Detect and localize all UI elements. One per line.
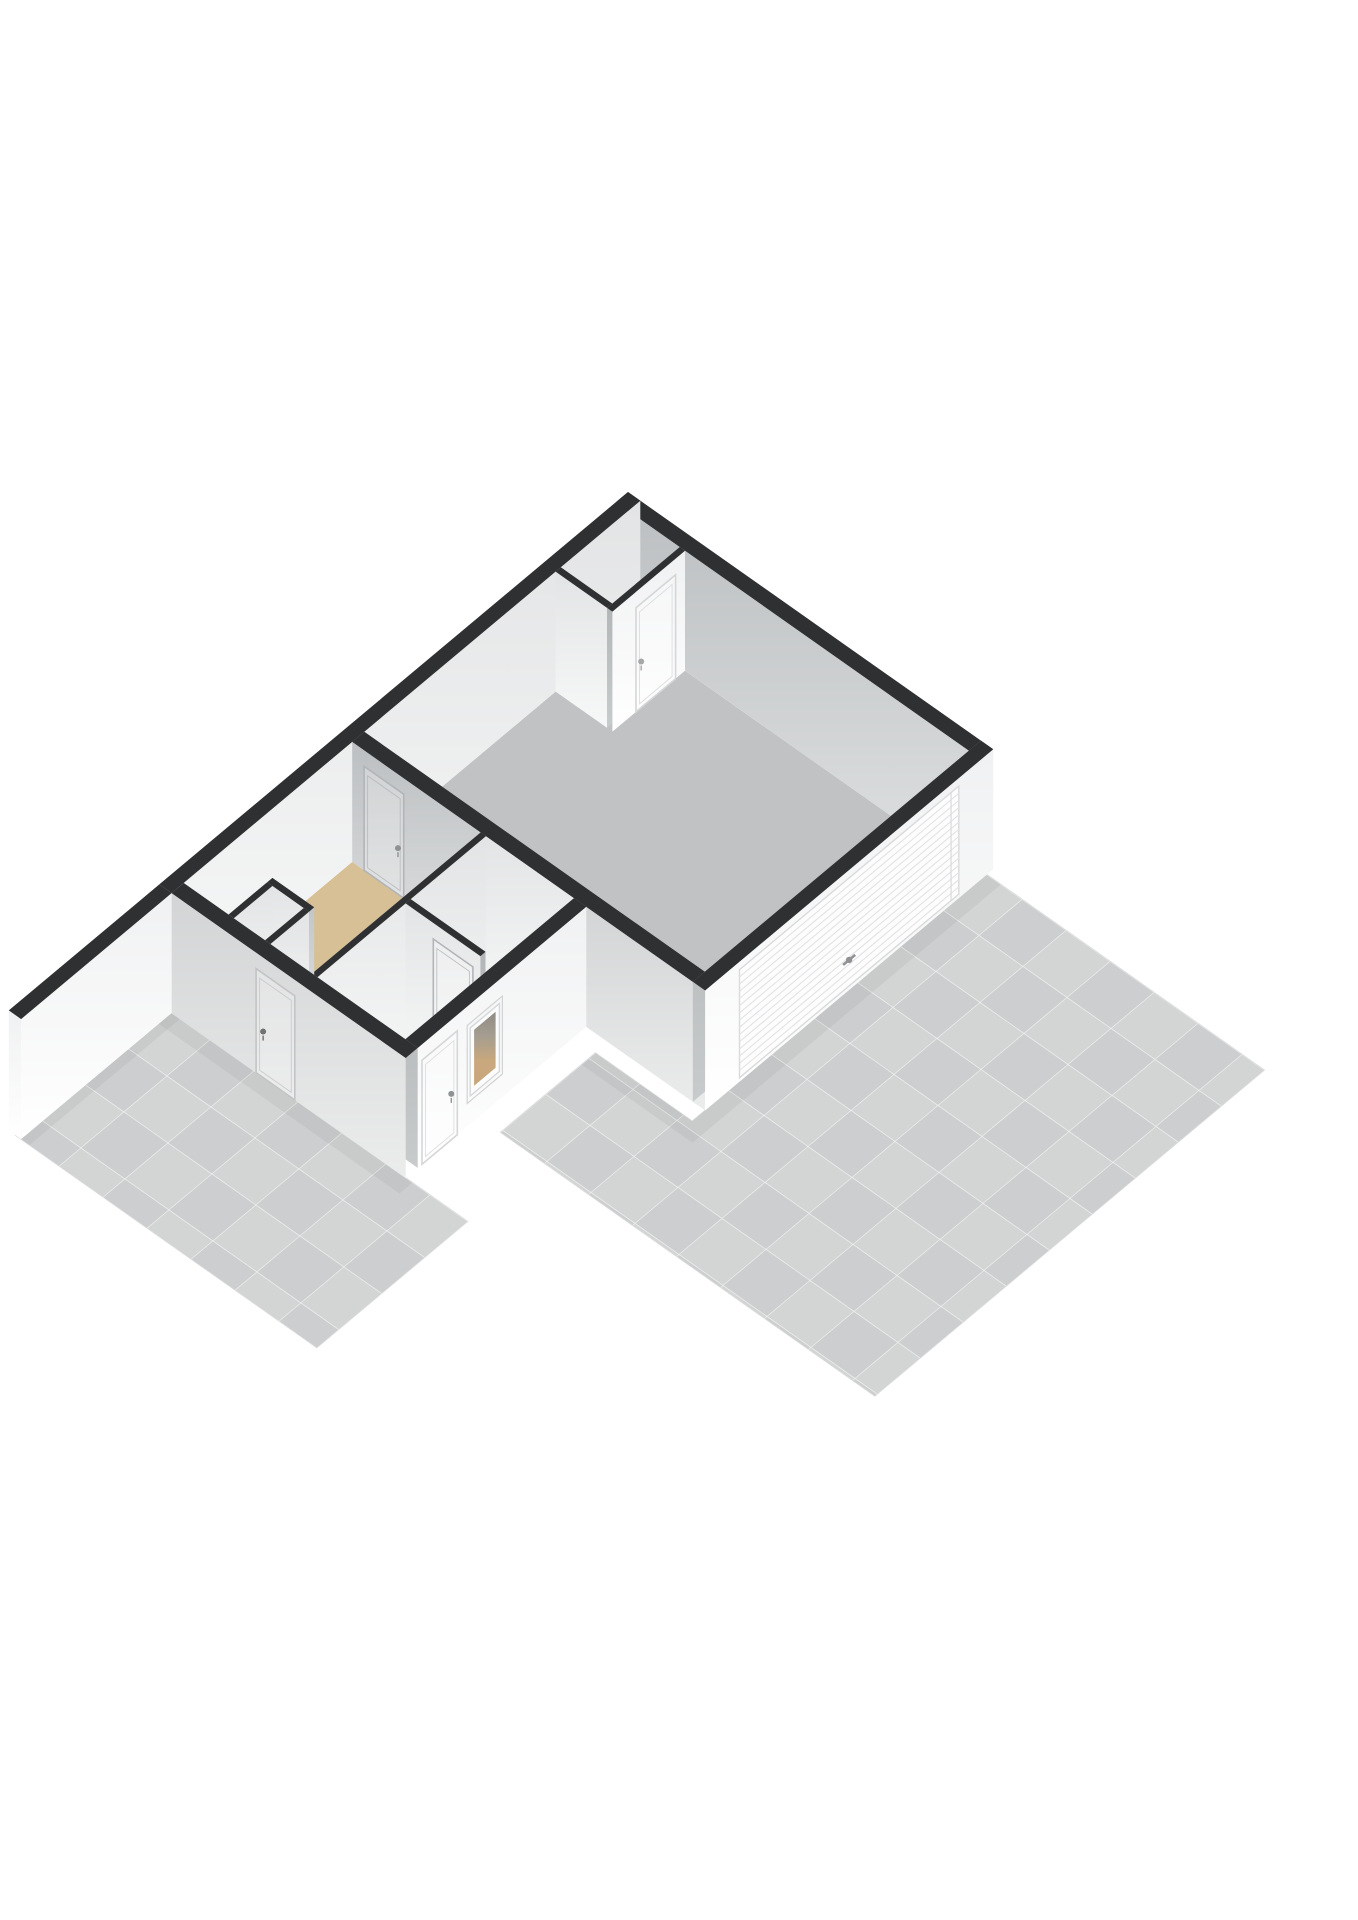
wall-garage-south-door-handle-icon	[395, 845, 401, 851]
patio-tile	[812, 1379, 899, 1446]
wall-southeast-wing-door-handle-icon	[448, 1091, 454, 1097]
floorplan-3d-svg	[0, 0, 1358, 1920]
garden-wall-face	[9, 1010, 21, 1139]
closet-wall-east-door-handle-icon	[638, 658, 644, 664]
wall-southwest-door-handle-icon	[260, 1029, 266, 1035]
floorplan-viewport	[0, 0, 1358, 1920]
